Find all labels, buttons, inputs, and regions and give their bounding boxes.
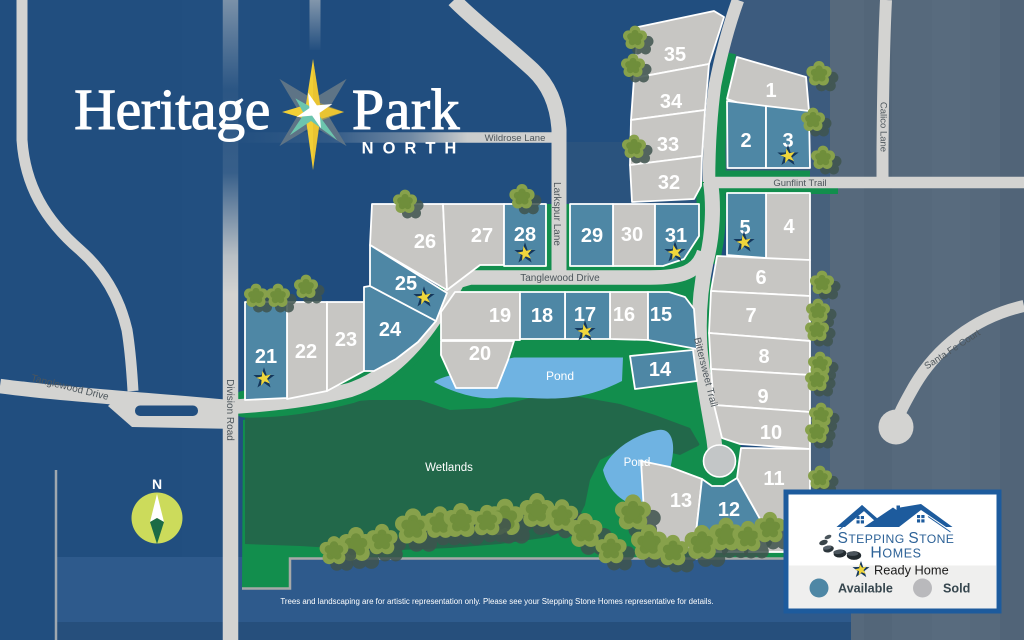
- svg-text:20: 20: [469, 343, 491, 365]
- svg-text:Wetlands: Wetlands: [425, 462, 473, 474]
- svg-text:34: 34: [660, 91, 683, 113]
- svg-text:Gunflint Trail: Gunflint Trail: [773, 178, 826, 189]
- svg-text:Calico Lane: Calico Lane: [878, 102, 889, 152]
- svg-text:1: 1: [765, 80, 776, 102]
- svg-text:Available: Available: [838, 582, 893, 596]
- svg-text:Pond: Pond: [624, 457, 651, 469]
- svg-text:Pond: Pond: [546, 369, 574, 383]
- svg-text:13: 13: [670, 490, 692, 512]
- svg-text:Wildrose Lane: Wildrose Lane: [485, 133, 546, 144]
- svg-text:Larkspur Lane: Larkspur Lane: [551, 182, 562, 246]
- svg-text:Park: Park: [352, 77, 460, 142]
- svg-text:8: 8: [758, 346, 769, 368]
- svg-text:18: 18: [531, 305, 553, 327]
- svg-text:24: 24: [379, 319, 402, 341]
- svg-text:Ready Home: Ready Home: [874, 563, 949, 578]
- svg-text:31: 31: [665, 225, 687, 247]
- svg-text:STEPPING STONE: STEPPING STONE: [838, 530, 955, 547]
- svg-text:4: 4: [783, 216, 795, 238]
- svg-text:29: 29: [581, 225, 603, 247]
- svg-text:Division Road: Division Road: [224, 379, 235, 441]
- svg-text:26: 26: [414, 231, 436, 253]
- svg-text:2: 2: [740, 130, 751, 152]
- svg-text:32: 32: [658, 172, 680, 194]
- svg-text:Trees and landscaping are for: Trees and landscaping are for artistic r…: [280, 597, 713, 606]
- svg-text:HOMES: HOMES: [870, 545, 921, 562]
- svg-text:21: 21: [255, 346, 277, 368]
- svg-text:30: 30: [621, 224, 643, 246]
- svg-text:22: 22: [295, 341, 317, 363]
- svg-text:7: 7: [745, 305, 756, 327]
- svg-text:12: 12: [718, 499, 740, 521]
- svg-text:14: 14: [649, 359, 672, 381]
- svg-text:10: 10: [760, 422, 782, 444]
- svg-text:11: 11: [763, 468, 784, 490]
- svg-text:N: N: [152, 476, 162, 492]
- svg-text:16: 16: [613, 304, 635, 326]
- svg-text:15: 15: [650, 304, 672, 326]
- svg-text:19: 19: [489, 305, 511, 327]
- svg-text:23: 23: [335, 329, 357, 351]
- svg-text:27: 27: [471, 225, 493, 247]
- svg-text:6: 6: [755, 267, 766, 289]
- svg-text:25: 25: [395, 273, 417, 295]
- svg-text:33: 33: [657, 134, 679, 156]
- svg-text:NORTH: NORTH: [362, 140, 466, 158]
- svg-text:Heritage: Heritage: [74, 77, 270, 142]
- svg-text:Tanglewood Drive: Tanglewood Drive: [520, 273, 600, 284]
- svg-text:9: 9: [757, 386, 768, 408]
- svg-text:35: 35: [664, 44, 686, 66]
- svg-text:Sold: Sold: [943, 582, 970, 596]
